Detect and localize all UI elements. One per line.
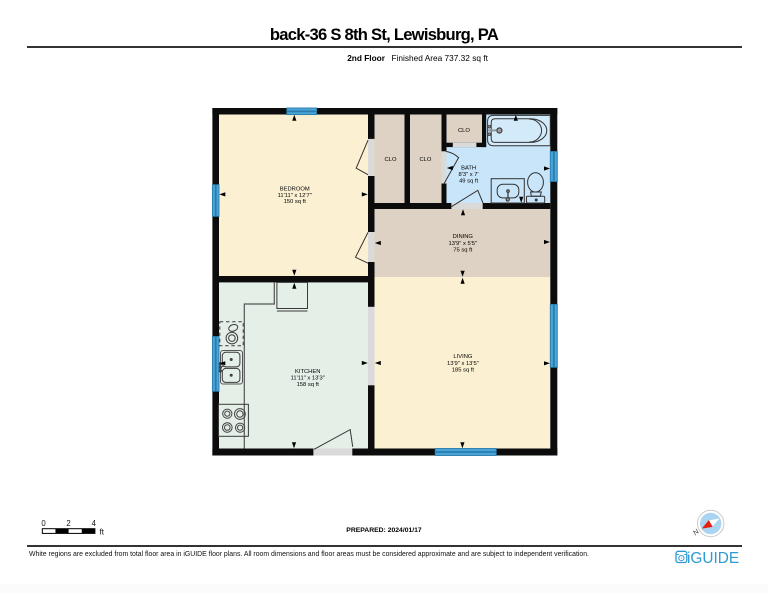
- svg-text:BEDROOM: BEDROOM: [280, 187, 310, 193]
- svg-text:11'11" x 12'7": 11'11" x 12'7": [278, 193, 312, 199]
- svg-text:CLO: CLO: [458, 128, 470, 134]
- svg-text:75 sq ft: 75 sq ft: [453, 247, 472, 253]
- svg-text:185 sq ft: 185 sq ft: [452, 368, 475, 374]
- svg-text:0: 0: [41, 519, 46, 528]
- svg-text:LIVING: LIVING: [453, 354, 472, 360]
- svg-text:4: 4: [92, 519, 97, 528]
- svg-text:CLO: CLO: [419, 157, 431, 163]
- svg-text:2: 2: [66, 519, 70, 528]
- svg-text:150 sq ft: 150 sq ft: [284, 199, 307, 205]
- svg-text:13'9" x 13'5": 13'9" x 13'5": [447, 361, 479, 367]
- svg-text:49 sq ft: 49 sq ft: [459, 179, 478, 185]
- svg-text:ft: ft: [100, 528, 105, 537]
- svg-text:11'11" x 13'3": 11'11" x 13'3": [291, 375, 325, 381]
- svg-text:158 sq ft: 158 sq ft: [297, 382, 320, 388]
- svg-text:8'3" x 7': 8'3" x 7': [459, 172, 479, 178]
- svg-text:CLO: CLO: [385, 157, 397, 163]
- svg-text:13'9" x 5'5": 13'9" x 5'5": [449, 241, 478, 247]
- svg-text:DINING: DINING: [453, 234, 474, 240]
- svg-text:BATH: BATH: [461, 166, 476, 172]
- svg-text:KITCHEN: KITCHEN: [295, 369, 320, 375]
